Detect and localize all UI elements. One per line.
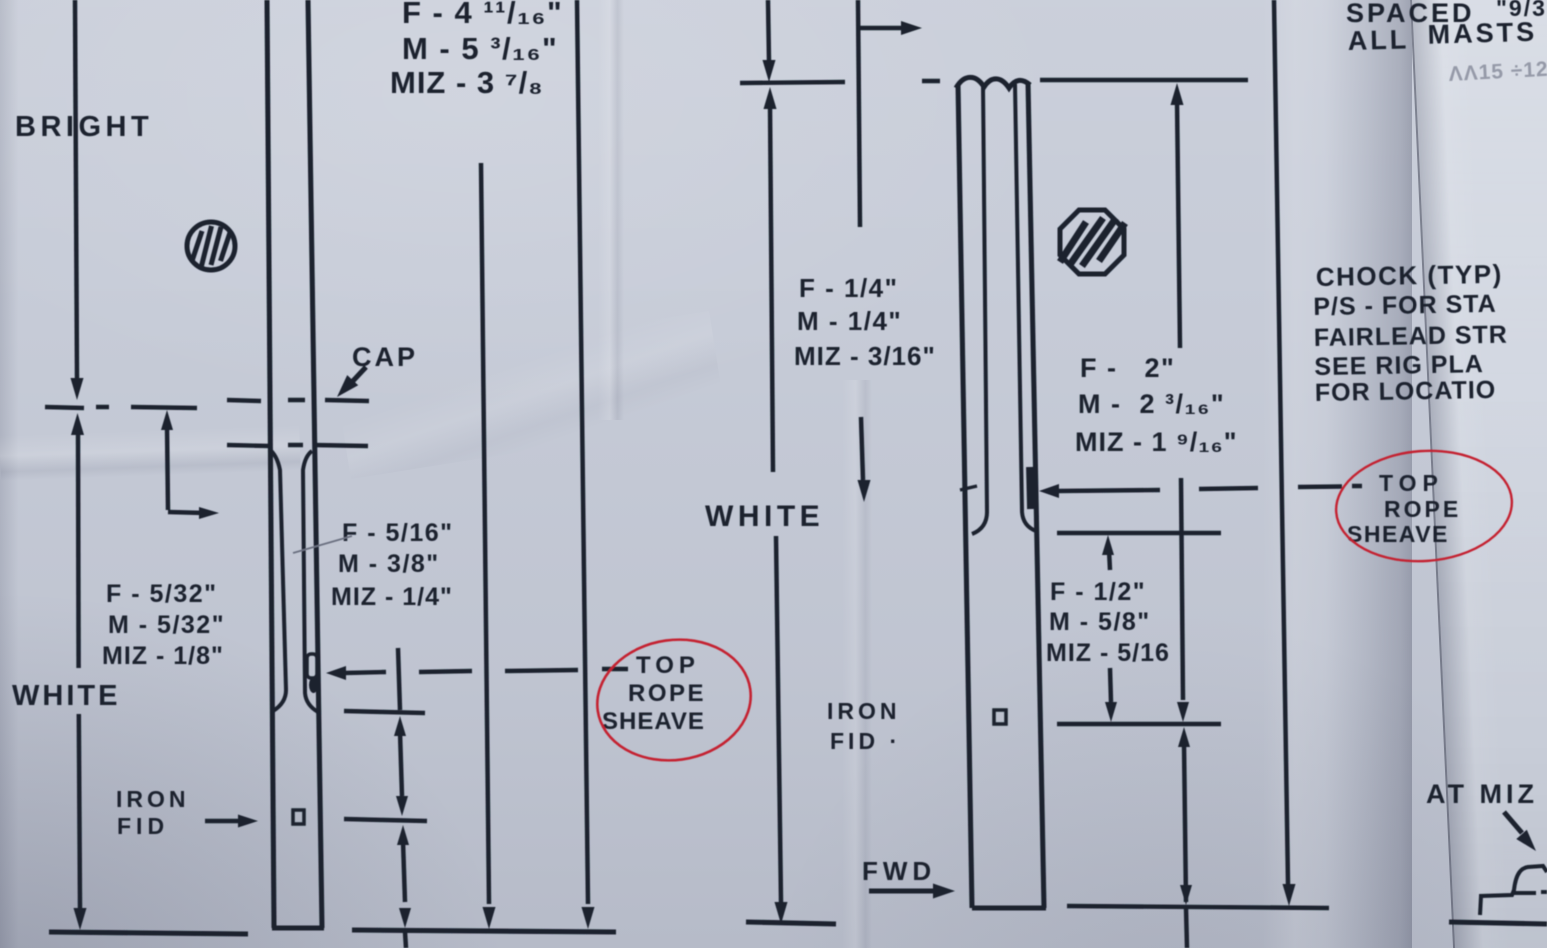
- svg-text:M - 3/8": M - 3/8": [338, 550, 440, 578]
- svg-text:F - 1/4": F - 1/4": [799, 273, 898, 303]
- svg-text:P/S - FOR STA: P/S - FOR STA: [1313, 290, 1497, 321]
- svg-text:SHEAVE: SHEAVE: [1347, 521, 1449, 547]
- svg-text:ROPE: ROPE: [1384, 496, 1461, 522]
- svg-text:ΛΛ15 ÷12: ΛΛ15 ÷12: [1448, 58, 1547, 86]
- svg-text:M - 1/4": M - 1/4": [797, 306, 902, 336]
- svg-text:MASTS: MASTS: [1427, 17, 1537, 50]
- svg-text:CHOCK (TYP): CHOCK (TYP): [1316, 259, 1503, 292]
- svg-text:MIZ - 1 ⁹/₁₆": MIZ - 1 ⁹/₁₆": [1075, 427, 1238, 457]
- svg-text:M - 5 ³/₁₆": M - 5 ³/₁₆": [402, 31, 558, 66]
- svg-text:FID ·: FID ·: [830, 728, 901, 754]
- svg-text:TOP: TOP: [636, 652, 700, 679]
- svg-text:FOR LOCATIO: FOR LOCATIO: [1315, 376, 1497, 407]
- svg-text:TOP: TOP: [1379, 470, 1444, 496]
- svg-text:MIZ - 3/16": MIZ - 3/16": [794, 341, 936, 371]
- svg-text:MIZ - 1/4": MIZ - 1/4": [331, 583, 453, 611]
- svg-text:MIZ - 3 ⁷/₈: MIZ - 3 ⁷/₈: [390, 65, 544, 100]
- svg-text:BRIGHT: BRIGHT: [15, 111, 153, 143]
- svg-text:CAP: CAP: [352, 342, 418, 372]
- svg-text:ROPE: ROPE: [628, 680, 706, 707]
- svg-text:MIZ - 5/16: MIZ - 5/16: [1046, 639, 1170, 667]
- svg-text:FWD: FWD: [862, 856, 936, 886]
- svg-text:F - 4 ¹¹/₁₆": F - 4 ¹¹/₁₆": [402, 0, 563, 30]
- svg-text:M - 5/32": M - 5/32": [108, 611, 225, 639]
- svg-text:F - 1/2": F - 1/2": [1050, 578, 1146, 606]
- svg-text:ALL: ALL: [1347, 24, 1409, 56]
- svg-text:F - 5/16": F - 5/16": [342, 519, 454, 547]
- svg-text:IRON: IRON: [827, 698, 901, 724]
- svg-text:WHITE: WHITE: [12, 680, 120, 712]
- svg-text:MIZ - 1/8": MIZ - 1/8": [102, 642, 224, 670]
- svg-text:M - 2 ³/₁₆": M - 2 ³/₁₆": [1078, 389, 1225, 419]
- svg-text:WHITE: WHITE: [705, 500, 824, 533]
- svg-text:F - 2": F - 2": [1080, 353, 1175, 383]
- svg-text:AT MIZ: AT MIZ: [1426, 779, 1538, 809]
- svg-text:F - 5/32": F - 5/32": [106, 580, 218, 608]
- svg-text:IRON: IRON: [116, 786, 190, 812]
- svg-text:SHEAVE: SHEAVE: [602, 708, 705, 735]
- svg-text:M - 5/8": M - 5/8": [1049, 608, 1151, 636]
- svg-text:FAIRLEAD STR: FAIRLEAD STR: [1314, 321, 1508, 352]
- svg-text:FID: FID: [117, 813, 169, 839]
